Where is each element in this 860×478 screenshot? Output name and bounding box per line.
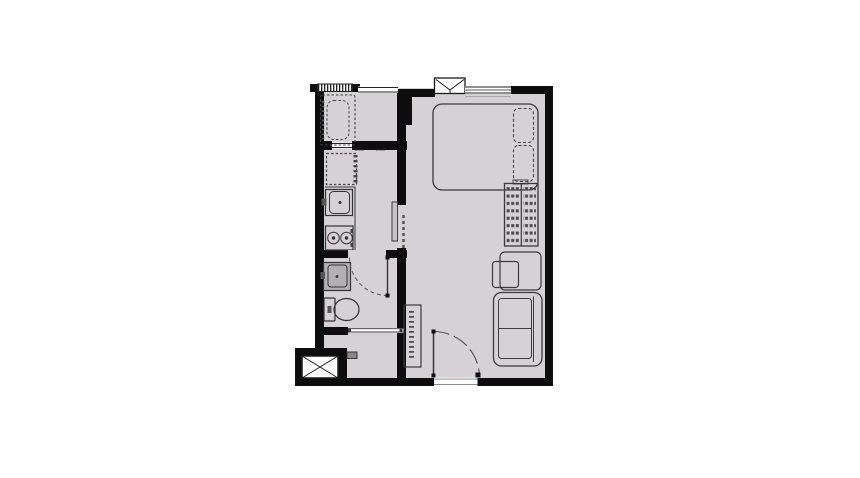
dim-label-right: xxx — [376, 148, 385, 153]
bathroom-basin — [321, 263, 351, 291]
wardrobe — [505, 180, 539, 246]
dim-label-left: xxx — [355, 148, 364, 153]
balcony-railing — [318, 84, 353, 92]
air-conditioner-ledge — [435, 78, 466, 94]
balcony-top-window — [358, 87, 398, 94]
nook-sliding-track — [348, 328, 404, 333]
floor-plan: xxx xxx — [0, 0, 860, 478]
service-pipe — [347, 352, 357, 359]
floor-plan-page: xxx xxx — [0, 0, 860, 478]
service-shaft — [302, 356, 338, 378]
